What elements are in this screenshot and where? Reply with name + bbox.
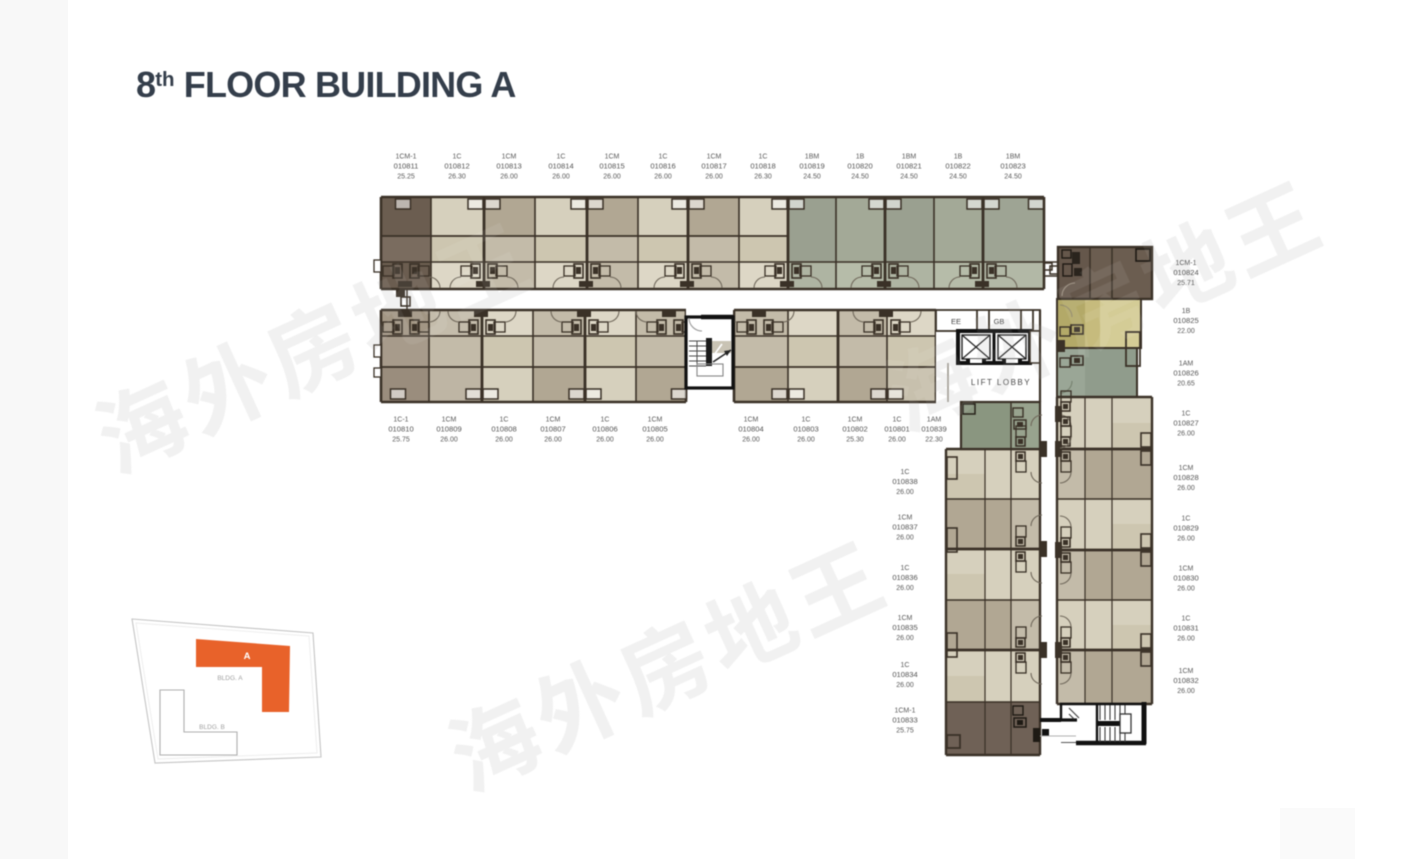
svg-text:26.00: 26.00: [603, 174, 621, 181]
svg-text:010835: 010835: [892, 623, 917, 632]
svg-text:26.00: 26.00: [544, 437, 562, 444]
svg-text:1C: 1C: [453, 154, 462, 161]
svg-text:1CM: 1CM: [1179, 566, 1194, 573]
svg-text:010805: 010805: [642, 425, 667, 434]
svg-text:1C: 1C: [802, 417, 811, 424]
svg-text:010828: 010828: [1173, 473, 1198, 482]
svg-text:1B: 1B: [1182, 308, 1191, 315]
svg-text:1C: 1C: [893, 417, 902, 424]
svg-text:25.75: 25.75: [392, 437, 410, 444]
svg-text:010829: 010829: [1173, 524, 1198, 533]
svg-text:010815: 010815: [599, 162, 624, 171]
svg-text:BLDG. B: BLDG. B: [199, 724, 225, 731]
svg-text:1CM: 1CM: [648, 417, 663, 424]
svg-text:010801: 010801: [884, 425, 909, 434]
svg-text:010820: 010820: [847, 162, 872, 171]
svg-text:20.65: 20.65: [1177, 381, 1195, 388]
svg-text:1CM: 1CM: [605, 154, 620, 161]
svg-text:1C: 1C: [901, 565, 910, 572]
svg-text:26.00: 26.00: [742, 437, 760, 444]
svg-text:1CM: 1CM: [848, 417, 863, 424]
svg-text:1C: 1C: [557, 154, 566, 161]
svg-text:25.75: 25.75: [896, 728, 914, 735]
svg-text:1CM: 1CM: [546, 417, 561, 424]
svg-text:26.00: 26.00: [1177, 485, 1195, 492]
svg-text:010812: 010812: [444, 162, 469, 171]
svg-text:1CM-1: 1CM-1: [1175, 260, 1196, 267]
svg-text:010824: 010824: [1173, 268, 1198, 277]
svg-text:24.50: 24.50: [803, 174, 821, 181]
svg-text:1CM: 1CM: [707, 154, 722, 161]
svg-text:1C: 1C: [601, 417, 610, 424]
svg-text:010822: 010822: [945, 162, 970, 171]
svg-text:010831: 010831: [1173, 624, 1198, 633]
svg-text:EE: EE: [951, 317, 961, 326]
svg-text:010819: 010819: [799, 162, 824, 171]
svg-text:1C: 1C: [659, 154, 668, 161]
svg-text:25.30: 25.30: [846, 437, 864, 444]
svg-text:1CM: 1CM: [442, 417, 457, 424]
svg-text:26.30: 26.30: [448, 174, 466, 181]
svg-text:26.00: 26.00: [896, 585, 914, 592]
svg-text:1BM: 1BM: [902, 154, 917, 161]
svg-text:26.00: 26.00: [495, 437, 513, 444]
svg-text:26.00: 26.00: [1177, 636, 1195, 643]
svg-text:24.50: 24.50: [949, 174, 967, 181]
svg-text:26.00: 26.00: [888, 437, 906, 444]
svg-text:010818: 010818: [750, 162, 775, 171]
svg-text:010834: 010834: [892, 670, 917, 679]
svg-text:010823: 010823: [1000, 162, 1025, 171]
svg-text:BLDG. A: BLDG. A: [217, 675, 243, 682]
svg-text:26.00: 26.00: [654, 174, 672, 181]
svg-text:010825: 010825: [1173, 316, 1198, 325]
svg-text:8th FLOOR BUILDING A: 8th FLOOR BUILDING A: [136, 64, 516, 105]
svg-text:1CM-1: 1CM-1: [894, 708, 915, 715]
svg-text:26.00: 26.00: [705, 174, 723, 181]
svg-text:24.50: 24.50: [1004, 174, 1022, 181]
svg-text:26.00: 26.00: [797, 437, 815, 444]
svg-text:010809: 010809: [436, 425, 461, 434]
svg-text:1BM: 1BM: [805, 154, 820, 161]
svg-text:010838: 010838: [892, 477, 917, 486]
svg-text:26.00: 26.00: [896, 535, 914, 542]
svg-text:010804: 010804: [738, 425, 763, 434]
svg-text:1CM: 1CM: [744, 417, 759, 424]
svg-text:010806: 010806: [592, 425, 617, 434]
svg-text:010814: 010814: [548, 162, 573, 171]
svg-text:26.00: 26.00: [1177, 431, 1195, 438]
svg-text:1AM: 1AM: [927, 417, 942, 424]
svg-text:1CM: 1CM: [898, 515, 913, 522]
svg-text:1BM: 1BM: [1006, 154, 1021, 161]
svg-text:1C: 1C: [901, 469, 910, 476]
svg-text:1C: 1C: [759, 154, 768, 161]
svg-text:26.00: 26.00: [896, 682, 914, 689]
svg-text:010821: 010821: [896, 162, 921, 171]
svg-text:1C: 1C: [901, 662, 910, 669]
svg-text:26.00: 26.00: [1177, 688, 1195, 695]
svg-text:010832: 010832: [1173, 676, 1198, 685]
svg-text:010826: 010826: [1173, 369, 1198, 378]
svg-text:1CM-1: 1CM-1: [395, 154, 416, 161]
svg-text:26.00: 26.00: [896, 489, 914, 496]
svg-text:26.00: 26.00: [646, 437, 664, 444]
svg-text:25.71: 25.71: [1177, 280, 1195, 287]
svg-text:010836: 010836: [892, 573, 917, 582]
svg-text:26.00: 26.00: [1177, 536, 1195, 543]
svg-text:010837: 010837: [892, 523, 917, 532]
svg-text:010810: 010810: [388, 425, 413, 434]
svg-text:1C: 1C: [1182, 516, 1191, 523]
svg-text:010839: 010839: [921, 425, 946, 434]
svg-text:1CM: 1CM: [502, 154, 517, 161]
svg-text:26.00: 26.00: [1177, 586, 1195, 593]
svg-text:24.50: 24.50: [900, 174, 918, 181]
svg-text:1B: 1B: [856, 154, 865, 161]
svg-text:26.00: 26.00: [440, 437, 458, 444]
svg-text:010816: 010816: [650, 162, 675, 171]
svg-text:22.00: 22.00: [1177, 328, 1195, 335]
svg-text:22.30: 22.30: [925, 437, 943, 444]
svg-text:1C: 1C: [1182, 616, 1191, 623]
svg-text:1CM: 1CM: [1179, 465, 1194, 472]
svg-text:010802: 010802: [842, 425, 867, 434]
svg-text:1AM: 1AM: [1179, 361, 1194, 368]
svg-text:010813: 010813: [496, 162, 521, 171]
svg-text:010808: 010808: [491, 425, 516, 434]
svg-text:010803: 010803: [793, 425, 818, 434]
svg-text:010811: 010811: [394, 162, 419, 171]
svg-text:25.25: 25.25: [397, 174, 415, 181]
svg-text:1C: 1C: [500, 417, 509, 424]
svg-text:1CM: 1CM: [1179, 668, 1194, 675]
svg-text:26.00: 26.00: [500, 174, 518, 181]
svg-text:24.50: 24.50: [851, 174, 869, 181]
svg-text:1CM: 1CM: [898, 615, 913, 622]
svg-text:1C: 1C: [1182, 411, 1191, 418]
svg-text:26.00: 26.00: [552, 174, 570, 181]
svg-text:010830: 010830: [1173, 574, 1198, 583]
svg-text:1C-1: 1C-1: [393, 417, 408, 424]
svg-text:010817: 010817: [701, 162, 726, 171]
svg-text:26.00: 26.00: [596, 437, 614, 444]
svg-text:010807: 010807: [540, 425, 565, 434]
svg-text:1B: 1B: [954, 154, 963, 161]
svg-text:26.30: 26.30: [754, 174, 772, 181]
svg-text:26.00: 26.00: [896, 635, 914, 642]
svg-text:010833: 010833: [892, 716, 917, 725]
svg-text:010827: 010827: [1173, 419, 1198, 428]
svg-text:A: A: [244, 651, 251, 662]
